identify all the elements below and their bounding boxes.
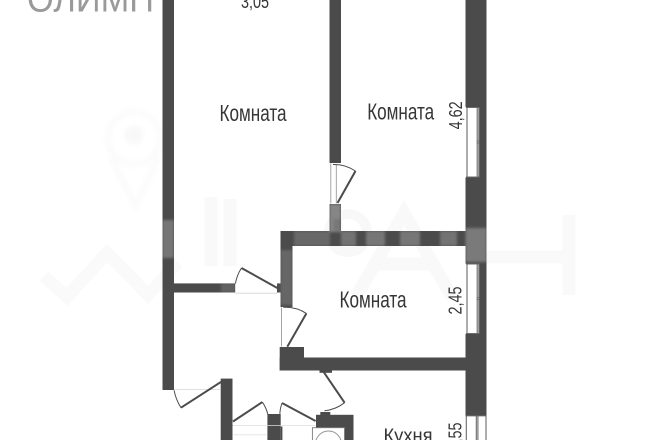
svg-text:3,05: 3,05: [241, 0, 269, 12]
svg-text:2,45: 2,45: [446, 287, 466, 315]
svg-text:Комната: Комната: [340, 287, 407, 313]
svg-text:Комната: Комната: [367, 99, 434, 125]
svg-text:Комната: Комната: [220, 100, 287, 126]
svg-text:ОЛИМП: ОЛИМП: [27, 0, 154, 21]
svg-text:2,55: 2,55: [446, 423, 466, 440]
svg-text:Кухня: Кухня: [384, 425, 433, 440]
svg-text:4,62: 4,62: [446, 101, 466, 129]
